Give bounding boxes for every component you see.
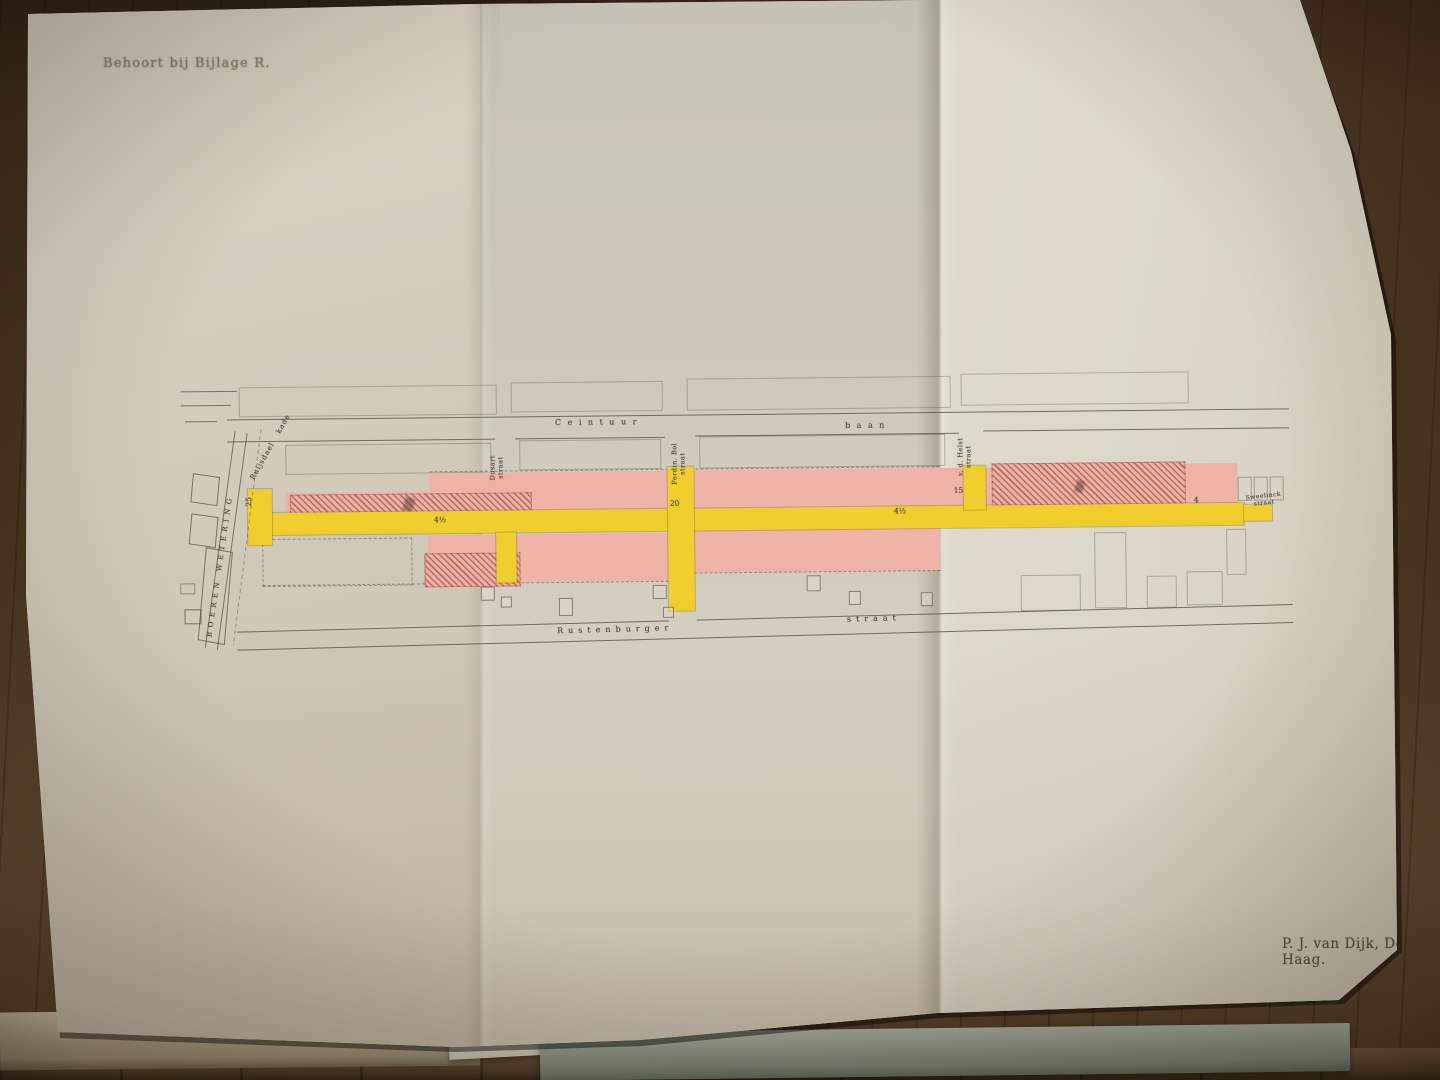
street-label-rustenburger: Rustenburger (557, 623, 673, 635)
building-block-outline (511, 381, 663, 413)
paper-shading-top-left (0, 0, 500, 260)
small-building (559, 598, 573, 616)
street-label-van-der-helststraat: v. d. Helst straat (956, 433, 975, 481)
building-outline (1226, 529, 1246, 575)
appendix-annotation: Behoort bij Bijlage R. (103, 56, 271, 71)
building-outline (1094, 532, 1127, 608)
small-building (807, 575, 821, 591)
dimension-15: 15 (954, 486, 964, 495)
photo-of-folded-map-appendix: Behoort bij Bijlage R. P. J. van Dijk, D… (0, 0, 1440, 1080)
rustenburgerstraat-south-line (238, 622, 1294, 651)
label-line: straat (678, 452, 686, 475)
street-label-ferdinand-bolstraat: Ferdin. Bol straat (670, 440, 689, 488)
small-building (849, 591, 861, 605)
rustenburgerstraat: Rustenburger straat (237, 598, 1295, 658)
label-line: straat (1253, 498, 1275, 507)
dimension-25: 25 (244, 497, 253, 507)
dimension-4half-east: 4½ (894, 506, 906, 515)
street-label-ceintuur: Ceintuur (555, 417, 643, 427)
street-label-straat: straat (847, 613, 901, 623)
rustenburgerstraat-north-line (697, 604, 1293, 621)
building-block-outline (687, 376, 951, 411)
building-block-outline (699, 434, 945, 469)
street-label-baan: baan (845, 420, 891, 429)
expropriation-parcel (694, 524, 940, 573)
small-building (481, 587, 495, 601)
building-block-outline (519, 439, 661, 470)
label-line: Ferdin. Bol (670, 443, 678, 485)
ceintuurbaan-south-line (983, 427, 1289, 431)
canal-and-left-buildings (177, 377, 320, 670)
street-label-dusartstraat: Dusart straat (488, 444, 507, 492)
label-line: Dusart (488, 455, 496, 480)
dimension-20: 20 (670, 499, 680, 508)
building-block-outline (961, 371, 1189, 405)
dimension-4half-west: 4½ (434, 515, 446, 524)
yellow-branch-ferdinand-bolstraat (667, 467, 695, 611)
small-building (653, 585, 667, 599)
label-line: straat (964, 445, 972, 468)
folded-map-sheet: Behoort bij Bijlage R. P. J. van Dijk, D… (0, 0, 1440, 1080)
label-line: v. d. Helst (956, 438, 964, 476)
dimension-4: 4 (1194, 495, 1199, 504)
small-building (921, 592, 933, 606)
label-line: straat (496, 456, 504, 479)
yellow-branch-dusartstraat (496, 532, 517, 582)
small-building (501, 596, 512, 607)
street-plan: Ceintuur baan (177, 366, 1320, 670)
